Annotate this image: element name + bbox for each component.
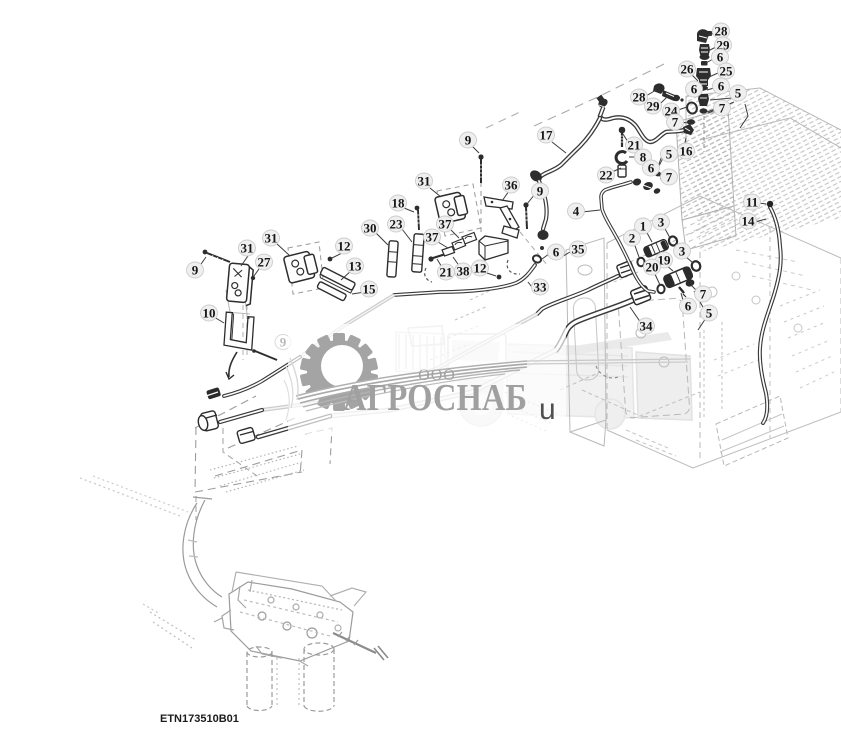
svg-text:21: 21 [440,265,453,280]
svg-text:31: 31 [418,174,431,189]
svg-text:6: 6 [718,79,725,94]
svg-text:16: 16 [680,144,694,159]
svg-text:28: 28 [715,24,729,39]
svg-text:7: 7 [666,170,673,185]
svg-text:22: 22 [600,168,613,183]
svg-text:6: 6 [553,245,560,260]
svg-text:17: 17 [540,128,554,143]
svg-text:23: 23 [390,217,404,232]
svg-text:36: 36 [505,178,519,193]
svg-text:20: 20 [646,260,659,275]
svg-text:31: 31 [241,241,254,256]
svg-text:13: 13 [349,259,363,274]
svg-text:25: 25 [720,64,734,79]
svg-text:28: 28 [633,90,647,105]
svg-text:5: 5 [706,306,713,321]
svg-text:11: 11 [746,195,758,210]
svg-text:4: 4 [573,204,580,219]
svg-text:37: 37 [426,230,440,245]
svg-text:9: 9 [280,335,287,350]
svg-text:3: 3 [658,215,665,230]
svg-text:27: 27 [258,255,272,270]
svg-text:6: 6 [691,82,698,97]
svg-text:6: 6 [685,299,692,314]
svg-text:38: 38 [457,264,471,279]
svg-text:12: 12 [474,261,487,276]
svg-text:6: 6 [648,161,655,176]
svg-text:9: 9 [192,263,199,278]
svg-text:2: 2 [629,231,636,246]
svg-text:5: 5 [735,86,742,101]
svg-text:5: 5 [666,147,673,162]
svg-text:6: 6 [717,50,724,65]
svg-text:10: 10 [203,306,216,321]
svg-text:15: 15 [363,282,377,297]
svg-text:u: u [539,393,556,426]
svg-text:18: 18 [392,196,406,211]
svg-text:АГРОСНАБ: АГРОСНАБ [343,377,527,419]
svg-text:30: 30 [364,221,377,236]
svg-text:1: 1 [640,219,647,234]
svg-text:31: 31 [265,231,278,246]
svg-text:35: 35 [572,242,586,257]
svg-text:12: 12 [338,239,351,254]
svg-text:9: 9 [465,133,472,148]
svg-text:33: 33 [534,280,548,295]
svg-text:14: 14 [742,214,756,229]
svg-text:26: 26 [681,62,695,77]
svg-text:37: 37 [439,217,453,232]
svg-text:34: 34 [640,319,654,334]
svg-text:9: 9 [537,184,544,199]
svg-text:29: 29 [647,99,661,114]
svg-text:7: 7 [700,287,707,302]
svg-text:7: 7 [672,115,679,130]
svg-text:ETN173510B01: ETN173510B01 [160,713,239,725]
svg-text:7: 7 [719,101,726,116]
svg-text:3: 3 [679,244,686,259]
